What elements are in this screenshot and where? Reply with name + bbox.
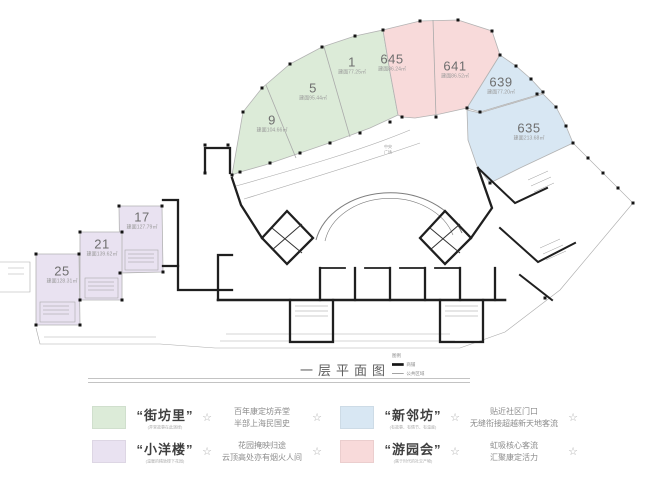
star-icon: ☆ — [200, 411, 214, 424]
unit-region-green — [232, 30, 398, 175]
legend-title-wrap: “小洋楼” (温暖的精致楼下花园) — [130, 439, 200, 465]
legend-desc-line1: 贴近社区门口 — [462, 406, 566, 418]
courtyard-label: 中央 广场 — [384, 145, 392, 155]
star-icon: ☆ — [310, 411, 324, 424]
legend-desc-line2: 汇聚康定活力 — [462, 452, 566, 464]
walls — [163, 148, 575, 342]
legend-item-jiefangli: “街坊里” (弄堂故事在此演绎) ☆ 百年康定坊弄堂 半部上海民国史 ☆ — [92, 402, 324, 433]
mini-legend-row: 公共区域 — [392, 370, 446, 376]
mini-legend: 图例 商铺 公共区域 — [392, 352, 452, 377]
legend-subtitle: (弄堂故事在此演绎) — [137, 424, 193, 430]
legend-desc-line2: 半部上海民国史 — [214, 418, 310, 430]
legend-desc-line1: 花园掩映归途 — [214, 440, 310, 452]
legend-subtitle: (有故事、有情节、有温度) — [385, 424, 441, 430]
floor-plan-canvas — [0, 0, 660, 400]
legend-desc-line2: 无缝衔接超越新天地客流 — [462, 418, 566, 430]
star-icon: ☆ — [566, 411, 580, 424]
legend-item-xiaoyanglou: “小洋楼” (温暖的精致楼下花园) ☆ 花园掩映归途 云顶高处亦有烟火人间 ☆ — [92, 436, 324, 467]
title-underline — [88, 378, 470, 383]
legend-title-wrap: “街坊里” (弄堂故事在此演绎) — [130, 405, 200, 431]
mini-legend-note: 图例 — [392, 352, 446, 358]
legend-description: 贴近社区门口 无缝衔接超越新天地客流 — [462, 406, 566, 430]
star-icon: ☆ — [448, 411, 462, 424]
legend-item-xinlinfang: “新邻坊” (有故事、有情节、有温度) ☆ 贴近社区门口 无缝衔接超越新天地客流… — [340, 402, 580, 433]
unit-regions — [36, 20, 573, 325]
legend-desc-line2: 云顶高处亦有烟火人间 — [214, 452, 310, 464]
legend-title: “新邻坊” — [378, 405, 448, 424]
legend-item-youyuanhui: “游园会” (属于时代的社交产物) ☆ 虹吸核心客流 汇聚康定活力 ☆ — [340, 436, 580, 467]
legend-title-wrap: “游园会” (属于时代的社交产物) — [378, 439, 448, 465]
core-details — [272, 224, 460, 253]
legend-subtitle: (温暖的精致楼下花园) — [137, 458, 193, 464]
courtyard-line1: 中央 — [384, 145, 392, 150]
unit-region-purple-17 — [119, 206, 163, 273]
star-icon: ☆ — [448, 445, 462, 458]
legend-desc-line1: 虹吸核心客流 — [462, 440, 566, 452]
legend-title: “街坊里” — [130, 405, 200, 424]
legend-swatch-green — [92, 406, 126, 429]
legend-title-wrap: “新邻坊” (有故事、有情节、有温度) — [378, 405, 448, 431]
legend-column-right: “新邻坊” (有故事、有情节、有温度) ☆ 贴近社区门口 无缝衔接超越新天地客流… — [340, 402, 580, 467]
legend-swatch-purple — [92, 440, 126, 463]
legend-title: “小洋楼” — [130, 439, 200, 458]
legend-description: 虹吸核心客流 汇聚康定活力 — [462, 440, 566, 464]
mini-legend-label: 商铺 — [406, 361, 415, 367]
courtyard-line2: 广场 — [384, 150, 392, 155]
legend-swatch-pink — [340, 440, 374, 463]
thin-line-key-icon — [392, 373, 404, 374]
legend-title: “游园会” — [378, 439, 448, 458]
star-icon: ☆ — [566, 445, 580, 458]
legend-subtitle: (属于时代的社交产物) — [385, 458, 441, 464]
legend-description: 花园掩映归途 云顶高处亦有烟火人间 — [214, 440, 310, 464]
legend-desc-line1: 百年康定坊弄堂 — [214, 406, 310, 418]
legend-description: 百年康定坊弄堂 半部上海民国史 — [214, 406, 310, 430]
star-icon: ☆ — [310, 445, 324, 458]
solid-line-key-icon — [392, 363, 404, 366]
unit-region-purple-25 — [36, 254, 80, 325]
legend: “街坊里” (弄堂故事在此演绎) ☆ 百年康定坊弄堂 半部上海民国史 ☆ “小洋… — [0, 402, 660, 478]
star-icon: ☆ — [200, 445, 214, 458]
mini-legend-label: 公共区域 — [406, 370, 424, 376]
floor-plan-page: 9 建面104.66㎡ 5 建面95.44㎡ 1 建面77.25㎡ 645 建面… — [0, 0, 660, 478]
legend-swatch-blue — [340, 406, 374, 429]
mini-legend-row: 商铺 — [392, 361, 446, 367]
legend-column-left: “街坊里” (弄堂故事在此演绎) ☆ 百年康定坊弄堂 半部上海民国史 ☆ “小洋… — [92, 402, 324, 467]
